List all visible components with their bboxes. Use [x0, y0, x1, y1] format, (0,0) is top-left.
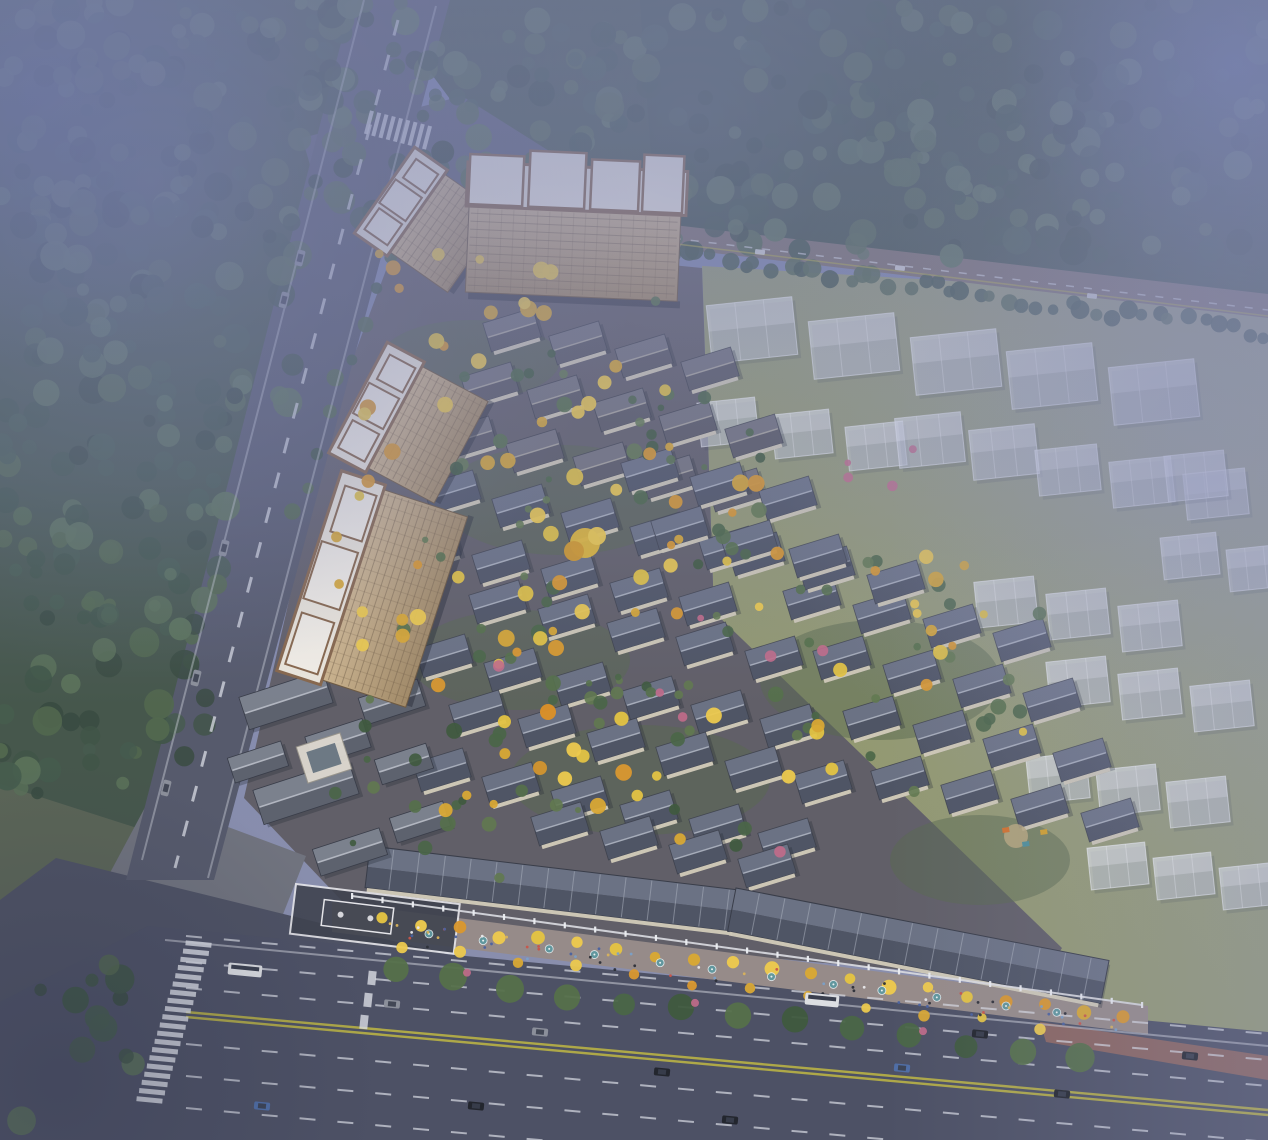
aerial-render-stage: [0, 0, 1268, 1140]
masterplan-aerial-scene: [0, 0, 1268, 1140]
haze-layer: [0, 0, 1268, 1140]
